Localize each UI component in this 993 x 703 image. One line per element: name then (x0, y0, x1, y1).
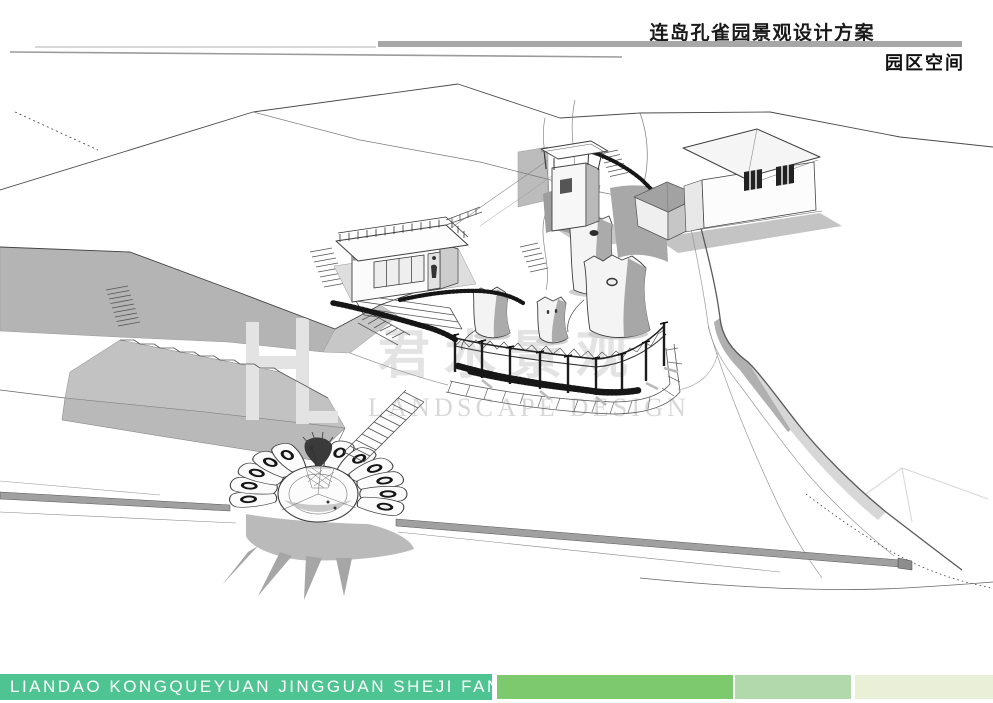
tower-window (560, 178, 572, 194)
footer-bar-light-green (735, 675, 851, 699)
dotted-shore-line (806, 494, 993, 588)
footer-slogan: LIANDAO KONGQUEYUAN JINGGUAN SHEJI FANGA… (0, 677, 546, 697)
site-aerial-drawing: 君水景观 LANDSCAPE DESIGN (0, 0, 993, 703)
lookout-pavilion (334, 207, 482, 302)
dotted-boundary-line (15, 112, 98, 150)
footer-bar-green (497, 675, 733, 699)
tower-canopy (541, 141, 608, 159)
header-rule-sloped (10, 52, 622, 57)
cottage-window (776, 164, 794, 186)
wall-end-cap (898, 558, 912, 570)
faint-path-outline (866, 468, 988, 522)
boundary-wall (0, 481, 912, 572)
presentation-slide: 连岛孔雀园景观设计方案 园区空间 (0, 0, 993, 703)
footer-bar-teal: LIANDAO KONGQUEYUAN JINGGUAN SHEJI FANGA… (0, 674, 492, 700)
cottage-window (744, 169, 762, 191)
river-edge (640, 212, 993, 590)
footer-bar-pale-green (855, 675, 993, 699)
